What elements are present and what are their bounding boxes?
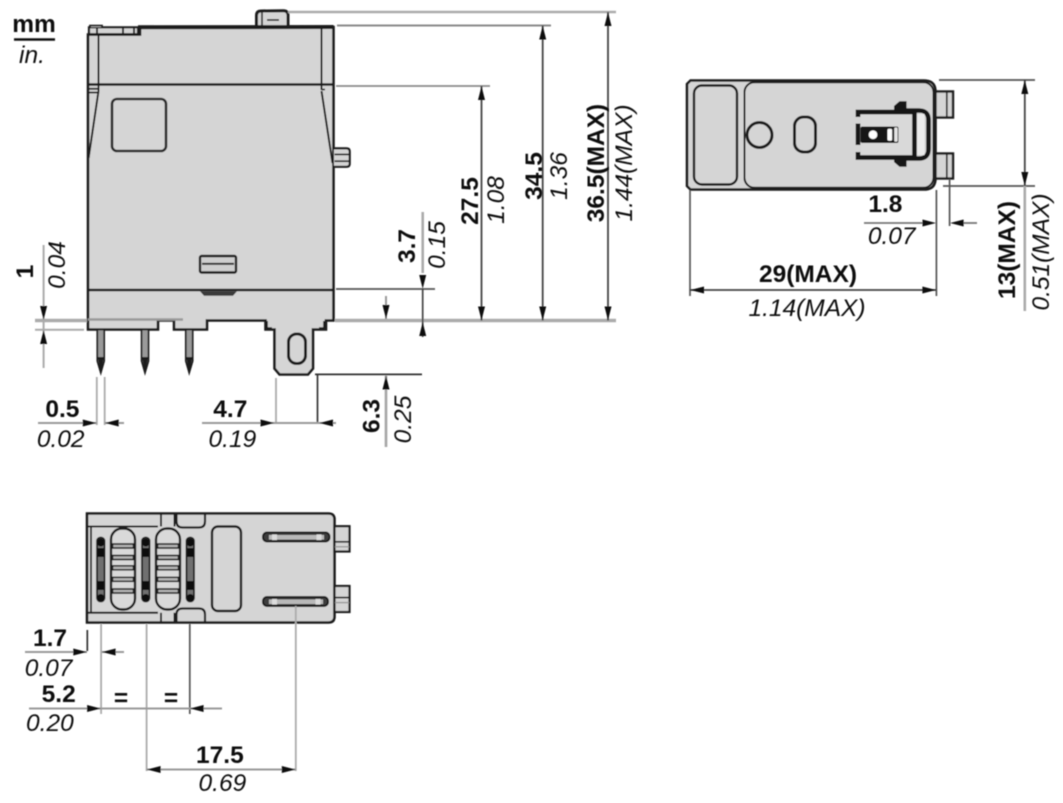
svg-text:=: = — [114, 685, 128, 712]
svg-text:in.: in. — [19, 42, 45, 69]
svg-text:1.36: 1.36 — [546, 152, 573, 200]
svg-text:1.7: 1.7 — [33, 625, 67, 652]
svg-text:29(MAX): 29(MAX) — [759, 261, 857, 288]
svg-text:0.07: 0.07 — [868, 223, 917, 250]
svg-text:3.7: 3.7 — [394, 229, 421, 263]
svg-text:1.8: 1.8 — [868, 191, 902, 218]
svg-text:0.25: 0.25 — [390, 395, 417, 443]
svg-text:0.04: 0.04 — [44, 241, 71, 289]
svg-text:=: = — [164, 685, 178, 712]
svg-text:6.3: 6.3 — [359, 399, 386, 433]
svg-text:17.5: 17.5 — [196, 742, 244, 769]
svg-text:4.7: 4.7 — [213, 396, 247, 423]
svg-text:1.08: 1.08 — [483, 176, 510, 224]
svg-text:0.5: 0.5 — [45, 396, 79, 423]
svg-text:5.2: 5.2 — [42, 681, 76, 708]
svg-text:mm: mm — [12, 11, 56, 38]
svg-text:0.20: 0.20 — [26, 710, 74, 737]
svg-text:34.5: 34.5 — [521, 152, 548, 200]
svg-text:13(MAX): 13(MAX) — [994, 201, 1021, 299]
svg-text:27.5: 27.5 — [457, 177, 484, 225]
svg-text:0.51(MAX): 0.51(MAX) — [1028, 193, 1055, 310]
svg-text:1.14(MAX): 1.14(MAX) — [748, 295, 865, 322]
svg-text:1: 1 — [12, 265, 39, 279]
svg-text:0.07: 0.07 — [25, 655, 74, 682]
svg-text:0.19: 0.19 — [209, 426, 257, 453]
svg-text:0.69: 0.69 — [199, 770, 247, 797]
svg-text:0.02: 0.02 — [37, 426, 85, 453]
svg-text:0.15: 0.15 — [424, 221, 451, 269]
svg-text:36.5(MAX): 36.5(MAX) — [583, 104, 610, 222]
svg-text:1.44(MAX): 1.44(MAX) — [611, 104, 638, 221]
